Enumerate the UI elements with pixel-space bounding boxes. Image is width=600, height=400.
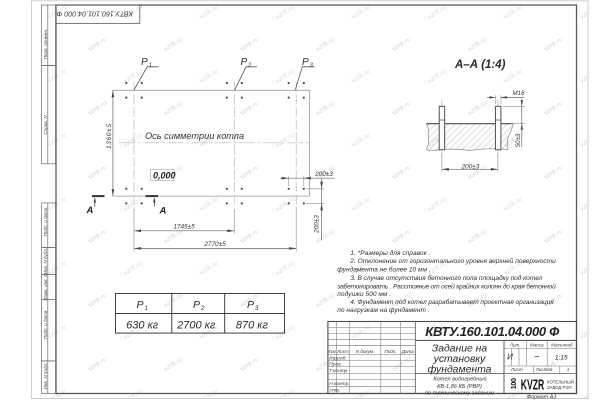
- svg-text:P: P: [193, 299, 200, 311]
- svg-text:Подп.: Подп.: [384, 349, 396, 354]
- svg-text:Утв.: Утв.: [329, 388, 340, 394]
- svg-text:КВТУ.160.101.04.000 Ф: КВТУ.160.101.04.000 Ф: [56, 10, 132, 17]
- svg-text:КОТЕЛЬНЫЙ: КОТЕЛЬНЫЙ: [547, 379, 574, 384]
- svg-text:Н.контр.: Н.контр.: [329, 381, 349, 387]
- svg-text:200±3: 200±3: [461, 163, 480, 170]
- svg-text:забетонировать . Расстояние: забетонировать . Расстояние от осей край…: [336, 282, 556, 290]
- svg-text:100: 100: [509, 378, 518, 389]
- svg-text:Изм.: Изм.: [327, 349, 337, 354]
- svg-text:1360±5: 1360±5: [106, 124, 113, 149]
- svg-text:Разраб.: Разраб.: [329, 355, 346, 361]
- svg-text:2: 2: [200, 306, 205, 312]
- svg-text:1. *Размеры для справок .: 1. *Размеры для справок .: [350, 249, 430, 257]
- svg-text:по техническому заданию: по техническому заданию: [425, 390, 495, 396]
- svg-text:Котел водогрейный: Котел водогрейный: [433, 375, 486, 382]
- svg-text:630 кг: 630 кг: [126, 320, 159, 332]
- svg-text:Подп. и дата: Подп. и дата: [43, 310, 48, 339]
- svg-text:1: 1: [567, 367, 570, 372]
- svg-text:А–А (1:4): А–А (1:4): [454, 59, 506, 71]
- svg-text:Формат А3: Формат А3: [527, 394, 557, 400]
- svg-text:Задание на: Задание на: [432, 343, 488, 354]
- svg-text:КВТУ.160.101.04.000 Ф: КВТУ.160.101.04.000 Ф: [425, 324, 560, 339]
- svg-text:870 кг: 870 кг: [236, 320, 269, 332]
- svg-text:P: P: [247, 299, 254, 311]
- svg-text:P: P: [241, 57, 248, 68]
- svg-text:Ось симметрии котла: Ось симметрии котла: [145, 131, 244, 141]
- svg-text:2770±5: 2770±5: [203, 241, 226, 248]
- svg-text:200±3: 200±3: [314, 171, 333, 178]
- svg-text:2. Отклонение от горизонтал: 2. Отклонение от горизонтального уровня …: [349, 257, 556, 265]
- svg-text:1: 1: [145, 306, 148, 312]
- svg-text:A: A: [86, 205, 94, 216]
- svg-text:50±3: 50±3: [515, 133, 522, 147]
- svg-text:КВ-1,86 КБ (РВР): КВ-1,86 КБ (РВР): [437, 384, 482, 390]
- svg-text:200±3: 200±3: [313, 215, 320, 234]
- svg-text:Инв. N дубл.: Инв. N дубл.: [43, 248, 48, 275]
- svg-text:P: P: [302, 57, 309, 68]
- svg-text:A: A: [159, 206, 167, 217]
- svg-text:установку: установку: [433, 354, 487, 365]
- svg-text:Взам. инв. N: Взам. инв. N: [43, 273, 48, 300]
- svg-text:P: P: [137, 299, 144, 311]
- svg-text:Лит.: Лит.: [509, 342, 521, 347]
- svg-text:2700 кг: 2700 кг: [176, 320, 216, 332]
- svg-text:Подп. и дата: Подп. и дата: [43, 207, 48, 236]
- svg-text:Перв. примен.: Перв. примен.: [43, 29, 48, 60]
- svg-text:1745±5: 1745±5: [173, 224, 195, 231]
- svg-text:по нагрузкам на фундамент .: по нагрузкам на фундамент .: [337, 306, 429, 314]
- svg-text:Лист: Лист: [336, 349, 349, 354]
- svg-text:Дата: Дата: [401, 349, 415, 354]
- svg-text:N докум.: N докум.: [356, 349, 375, 354]
- svg-text:4. Фундамент под котел раз: 4. Фундамент под котел разрабатывает про…: [350, 298, 554, 306]
- svg-text:P: P: [141, 57, 148, 68]
- svg-text:фундамента не более 10 мм: фундамента не более 10 мм .: [337, 266, 431, 274]
- svg-text:0,000: 0,000: [153, 171, 176, 181]
- svg-text:Листов: Листов: [535, 367, 553, 372]
- svg-text:Пров.: Пров.: [329, 361, 342, 367]
- svg-text:–: –: [534, 352, 540, 361]
- svg-text:подушки 500 мм .: подушки 500 мм .: [337, 290, 391, 298]
- svg-text:3. В случае отсутствия бет: 3. В случае отсутствия бетонного пола пл…: [350, 274, 542, 282]
- svg-text:ЗАВОД РЭП: ЗАВОД РЭП: [547, 385, 572, 390]
- svg-text:Т.контр.: Т.контр.: [329, 368, 348, 374]
- svg-text:М16: М16: [513, 90, 526, 97]
- svg-text:Инв. N подл.: Инв. N подл.: [43, 363, 48, 390]
- svg-text:Масса: Масса: [530, 342, 544, 347]
- svg-text:1:15: 1:15: [555, 354, 568, 361]
- svg-text:Справ. N: Справ. N: [43, 115, 48, 135]
- svg-text:2: 2: [247, 63, 252, 69]
- svg-text:1: 1: [149, 63, 152, 69]
- svg-text:Масштаб: Масштаб: [551, 342, 573, 347]
- svg-text:Лист: Лист: [510, 367, 523, 372]
- svg-text:И: И: [507, 353, 513, 362]
- svg-text:KVZR: KVZR: [521, 378, 545, 394]
